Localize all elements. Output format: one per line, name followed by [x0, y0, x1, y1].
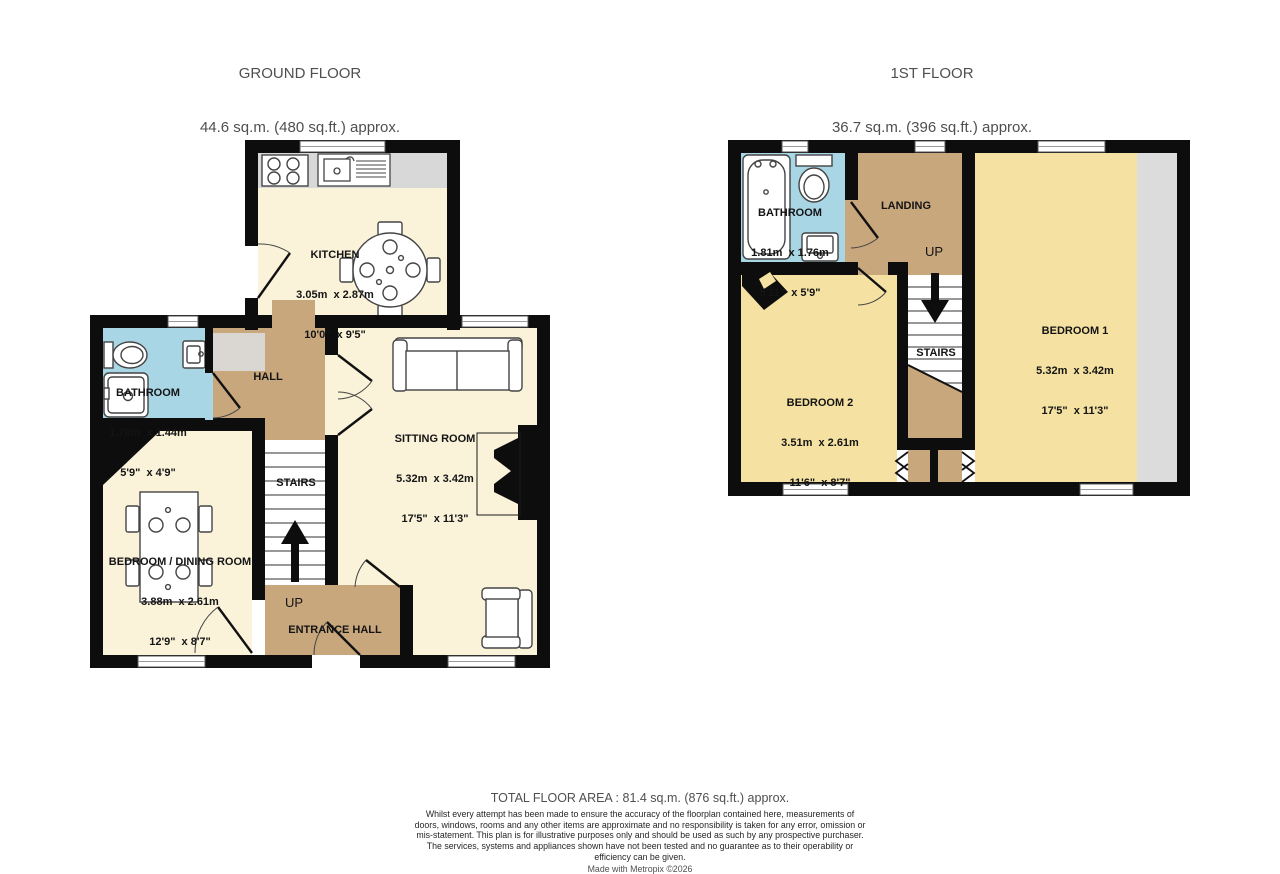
ground-floor-area: 44.6 sq.m. (480 sq.ft.) approx. [200, 119, 400, 137]
first-floor-title: 1ST FLOOR 36.7 sq.m. (396 sq.ft.) approx… [832, 28, 1032, 156]
ground-up-label: UP [285, 595, 303, 611]
window [915, 141, 945, 152]
first-up-label: UP [925, 244, 943, 260]
footer: TOTAL FLOOR AREA : 81.4 sq.m. (876 sq.ft… [360, 791, 920, 874]
first-floor-plan: BATHROOM 1.81m x 1.76m 5'11" x 5'9" LAND… [728, 140, 1190, 496]
sofa-icon [393, 338, 522, 391]
sitting-room-label: SITTING ROOM 5.32m x 3.42m 17'5" x 11'3" [395, 406, 476, 553]
window [168, 316, 198, 327]
hall-cupboard [213, 333, 270, 371]
first-stairs-label: STAIRS [916, 347, 956, 360]
ground-floor-title-line: GROUND FLOOR [200, 65, 400, 83]
total-floor-area: TOTAL FLOOR AREA : 81.4 sq.m. (876 sq.ft… [360, 791, 920, 805]
metropix-credit: Made with Metropix ©2026 [360, 864, 920, 874]
landing-floor [845, 153, 962, 275]
front-door-opening [312, 655, 360, 668]
cupboard-right [938, 450, 962, 482]
bedroom2-label: BEDROOM 2 3.51m x 2.61m 11'6" x 8'7" [781, 370, 859, 517]
window [462, 316, 528, 327]
hob-icon [262, 155, 308, 186]
bathroom1f-door-opening [845, 200, 858, 235]
window [448, 656, 515, 667]
window [1080, 484, 1133, 495]
ground-floor-plan: KITCHEN 3.05m x 2.87m 10'0" x 9'5" BATHR… [90, 140, 550, 670]
cupboard-left [908, 450, 930, 482]
disclaimer-text: Whilst every attempt has been made to en… [414, 809, 866, 863]
ground-stairs-label: STAIRS [276, 477, 316, 490]
first-bathroom-label: BATHROOM 1.81m x 1.76m 5'11" x 5'9" [751, 180, 829, 327]
entrance-hall-label: ENTRANCE HALL [288, 624, 382, 637]
armchair-icon [482, 588, 532, 648]
window [300, 141, 385, 152]
bathroom-door-opening [205, 373, 213, 420]
bedroom1-reduced-height-strip [1137, 153, 1177, 482]
ground-floor-title: GROUND FLOOR 44.6 sq.m. (480 sq.ft.) app… [200, 28, 400, 156]
hall-label: HALL [253, 371, 282, 384]
kitchen-sink-icon [318, 154, 390, 186]
kitchen-label: KITCHEN 3.05m x 2.87m 10'0" x 9'5" [296, 222, 374, 369]
bedroom1-label: BEDROOM 1 5.32m x 3.42m 17'5" x 11'3" [1036, 298, 1114, 445]
first-floor-area: 36.7 sq.m. (396 sq.ft.) approx. [832, 119, 1032, 137]
kitchen-door-opening [245, 246, 258, 298]
window [1038, 141, 1105, 152]
ground-bathroom-label: BATHROOM 1.76m x 1.44m 5'9" x 4'9" [109, 360, 187, 507]
first-floor-title-line: 1ST FLOOR [832, 65, 1032, 83]
landing-label: LANDING [881, 200, 931, 213]
bedroom-dining-label: BEDROOM / DINING ROOM 3.88m x 2.61m 12'9… [109, 529, 251, 676]
window [782, 141, 808, 152]
